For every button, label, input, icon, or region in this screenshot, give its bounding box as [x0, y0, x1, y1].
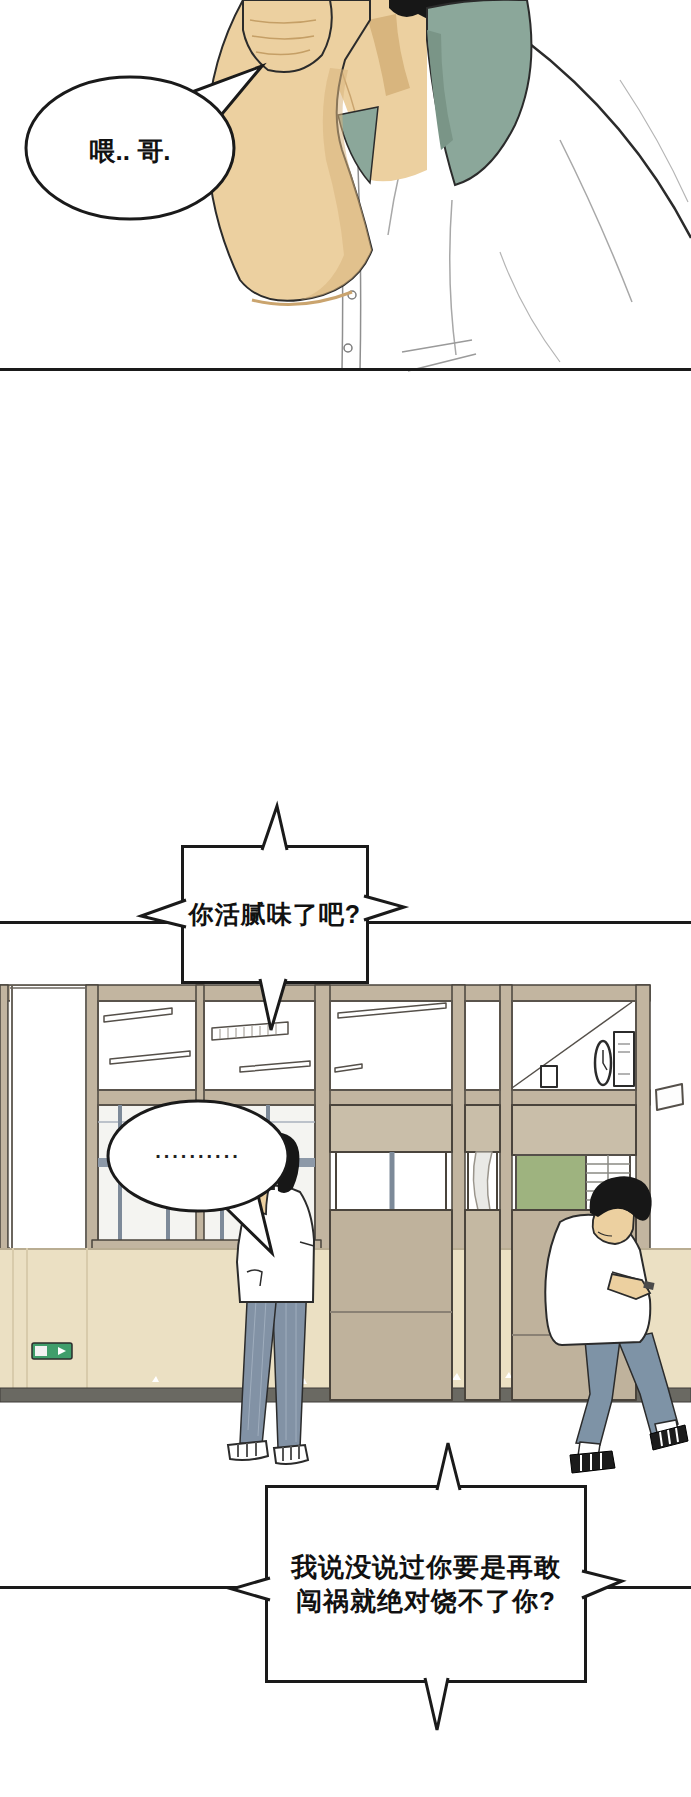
shirt-button: [344, 344, 352, 352]
panel-1-border: [0, 368, 691, 371]
small-frame: [541, 1066, 557, 1087]
wall-poster: [614, 1032, 634, 1086]
bubble-3-text: ..........: [118, 1140, 278, 1163]
wall-pillar: [10, 986, 86, 1248]
bubble-2-spikes: [120, 795, 420, 1040]
exit-sign-icon: [32, 1343, 72, 1359]
comic-page: 喂.. 哥.: [0, 0, 691, 1797]
panel-1-artwork: [0, 0, 691, 372]
green-board: [516, 1155, 586, 1210]
bubble-1-text: 喂.. 哥.: [40, 134, 220, 169]
bubble-4-spikes: [220, 1438, 640, 1735]
wall-sign: [656, 1084, 683, 1110]
